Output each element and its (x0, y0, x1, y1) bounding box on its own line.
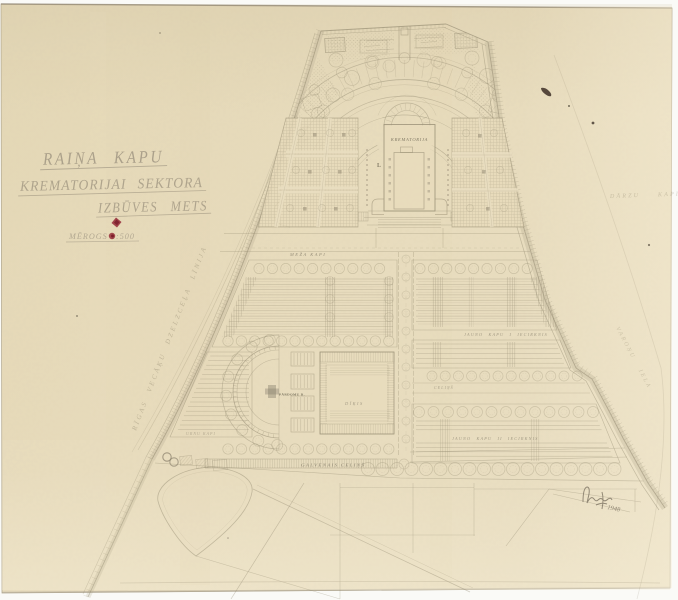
svg-text:JAUNO KAPU II IECIRKNIS: JAUNO KAPU II IECIRKNIS (452, 436, 539, 441)
svg-text:GALVENAIS CELIŅŠ: GALVENAIS CELIŅŠ (301, 463, 365, 468)
svg-text:RAIŅA KAPU: RAIŅA KAPU (42, 146, 164, 169)
svg-text:MĒROGS 1:500: MĒROGS 1:500 (68, 232, 135, 241)
svg-text:JAUNO KAPU I IECIRKNIS: JAUNO KAPU I IECIRKNIS (464, 332, 548, 337)
svg-text:CELIŅŠ: CELIŅŠ (434, 385, 454, 390)
svg-text:MEŽA KAPI: MEŽA KAPI (289, 252, 326, 257)
svg-text:DĪĶIS: DĪĶIS (344, 401, 364, 406)
svg-text:L: L (377, 163, 381, 169)
svg-text:URNU KAPI: URNU KAPI (186, 431, 216, 436)
svg-text:KREMATORIJA: KREMATORIJA (390, 137, 428, 142)
